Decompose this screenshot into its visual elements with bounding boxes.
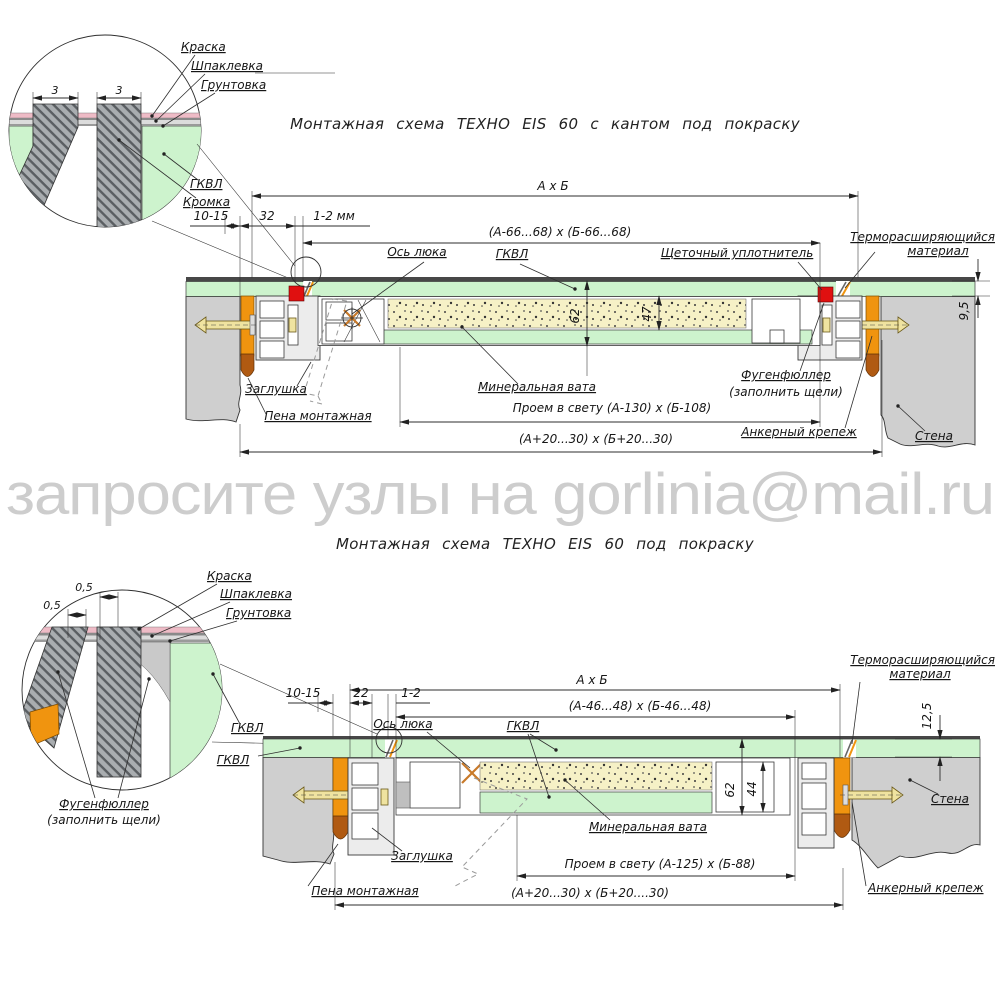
mineral-wool-label: Минеральная вата [478,380,596,394]
door-thickness-dim: 62 [568,308,582,323]
overall-dim: А х Б [575,673,607,687]
overall-dim: А х Б [536,179,568,193]
plug-label: Заглушка [245,382,307,396]
board-thickness-dim: 12,5 [920,703,934,730]
clear-opening-dim: Проем в свету (А-125) х (Б-88) [565,857,756,871]
gap-dim: 0,5 [75,581,93,594]
frame-width-dim: 22 [353,686,368,700]
foam-blob-left [241,354,254,377]
clear-opening-dim: Проем в свету (А-130) х (Б-108) [513,401,711,415]
ceiling-paint-line [186,277,975,282]
door-thickness-dim: 62 [723,782,737,797]
inner-height-dim: 44 [745,781,759,796]
fugen-label2: (заполнить щели) [47,813,161,827]
foam-blob-right [866,354,879,377]
thermo-material-label: Терморасширяющийся [850,653,995,667]
mounting-dim: (А+20...30) х (Б+20...30) [519,432,673,446]
seal-block-left [289,286,304,301]
frame-width-dim: 32 [259,209,274,223]
gkvl-label: ГКВЛ [507,719,539,733]
gkvl-label: ГКВЛ [190,177,222,191]
putty-label: Шпаклевка [220,587,292,601]
leaf-size-dim: (А-46...48) х (Б-46...48) [569,699,712,713]
bottom-diagram-title: Монтажная схема ТЕХНО EIS 60 под покраск… [336,535,755,553]
thermo-material-label2: материал [907,244,969,258]
door-gkvl-layer [330,330,812,344]
primer-label: Грунтовка [226,606,291,620]
foam-blob-right [834,814,850,838]
wall-gap-dim: 10-15 [194,209,229,223]
ceiling-gkvl-band [263,739,980,758]
paint-label: Краска [207,569,252,583]
leaf-size-dim: (А-66...68) х (Б-66...68) [489,225,632,239]
fugen-label2: (заполнить щели) [729,385,843,399]
wall-right [852,758,980,869]
edge-width-dim: 3 [116,84,123,97]
gkvl-label: ГКВЛ [231,721,263,735]
brush-seal-label: Щеточный уплотнитель [661,246,814,260]
wool-thickness-dim: 47 [640,306,654,322]
foam-label: Пена монтажная [264,409,371,423]
primer-label: Грунтовка [201,78,266,92]
foam-label: Пена монтажная [311,884,418,898]
gkvl-ceiling-label: ГКВЛ [217,753,249,767]
door-axis-label: Ось люка [387,245,446,259]
door-axis-symbol [341,307,363,329]
mounting-dim: (А+20...30) х (Б+20....30) [511,886,669,900]
mineral-wool-label: Минеральная вата [589,820,707,834]
wall-left [263,758,334,865]
installation-drawing-page: 3 3 Краска Шпаклевка Грунтовка ГКВЛ Кром… [0,0,1000,1000]
edge-width-dim: 3 [52,84,59,97]
edge-label: Кромка [183,195,230,209]
edge-profile-right [97,104,141,230]
wall-gap-dim: 10-15 [286,686,321,700]
thermo-material-label: Терморасширяющийся [850,230,995,244]
foam-blob-left [333,816,348,839]
door-axis-label: Ось люка [373,717,432,731]
fugen-label: Фугенфюллер [741,368,831,382]
leaf-gap-dim: 1-2 [401,686,421,700]
gkvl-label: ГКВЛ [496,247,528,261]
mineral-wool-fill [388,299,746,328]
ceiling-paint-line [263,736,980,739]
fugen-label: Фугенфюллер [59,797,149,811]
hinge-mechanism [410,762,460,808]
anchor-label: Анкерный крепеж [867,881,984,895]
profile-right [97,627,141,777]
board-thickness-dim: 9,5 [957,301,971,320]
wall-label: Стена [915,429,953,443]
thermo-strip-left [333,758,348,818]
door-gkvl-layer [480,792,712,813]
watermark-text: запросите узлы на gorlinia@mail.ru [6,462,994,527]
wall-label: Стена [931,792,969,806]
wall-left [186,297,241,423]
gap-dim: 0,5 [43,599,61,612]
plug-label: Заглушка [391,849,453,863]
putty-label: Шпаклевка [191,59,263,73]
drawing-canvas: 3 3 Краска Шпаклевка Грунтовка ГКВЛ Кром… [0,0,1000,1000]
thermo-material-label2: материал [889,667,951,681]
top-diagram-title: Монтажная схема ТЕХНО EIS 60 с кантом по… [290,115,801,133]
anchor-label: Анкерный крепеж [740,425,857,439]
leaf-gap-dim: 1-2 мм [313,209,355,223]
paint-label: Краска [181,40,226,54]
mineral-wool-fill [480,762,712,790]
